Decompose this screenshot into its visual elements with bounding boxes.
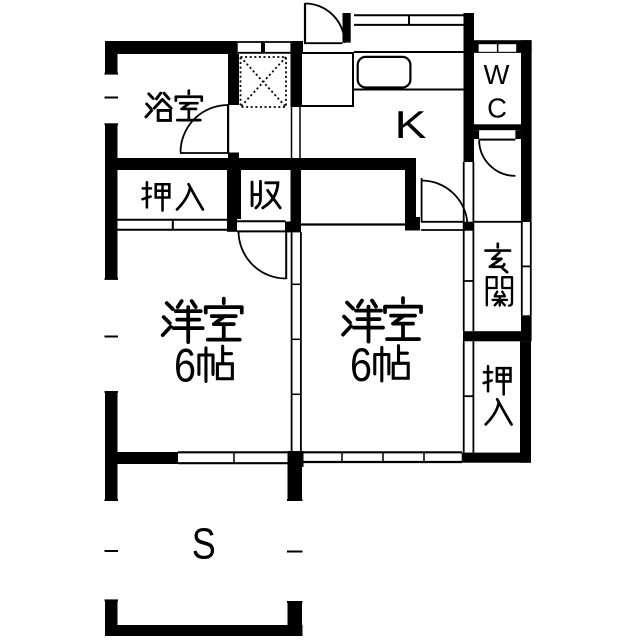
svg-text:6: 6 bbox=[174, 339, 196, 392]
svg-text:W: W bbox=[484, 59, 510, 90]
svg-text:6: 6 bbox=[350, 338, 372, 391]
svg-text:S: S bbox=[192, 520, 216, 569]
svg-text:C: C bbox=[487, 93, 507, 124]
svg-text:K: K bbox=[395, 104, 427, 147]
